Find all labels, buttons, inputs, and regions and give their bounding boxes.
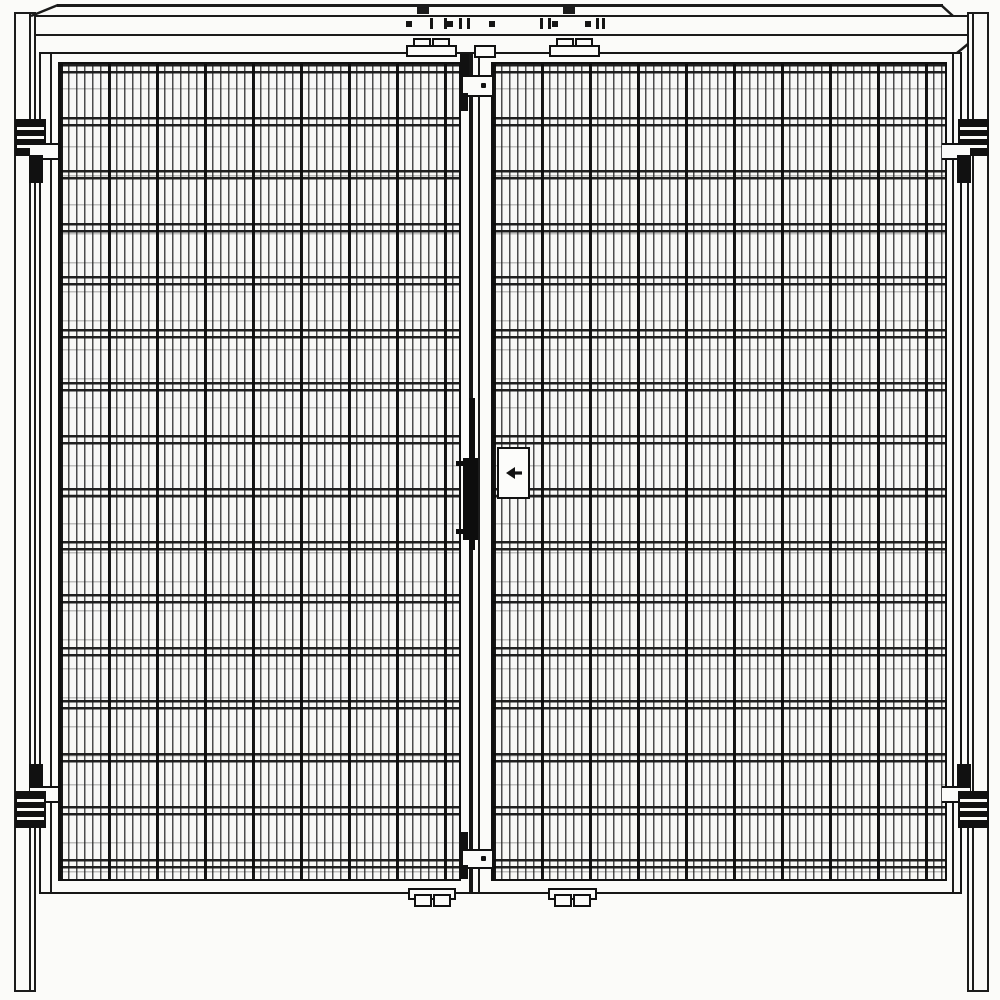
hinge-leaf	[957, 155, 971, 183]
wire-mesh-panel-right	[491, 62, 947, 881]
top-rail	[31, 15, 969, 36]
arrow-left-icon	[503, 465, 525, 481]
rail-bolt-icon	[489, 21, 495, 27]
rail-fitting	[430, 18, 433, 29]
stile-edge-line	[50, 54, 52, 892]
lock-rod-upper	[469, 398, 475, 462]
latch-stub	[459, 93, 468, 111]
hinge-right-bottom	[958, 791, 989, 828]
lock-rod-lower	[469, 538, 475, 550]
rail-bolt-icon	[585, 21, 591, 27]
door-leaf-left	[39, 52, 471, 894]
rod-bracket	[456, 529, 465, 534]
rod-bracket	[456, 461, 465, 466]
track-bolt-notch-right	[563, 6, 575, 14]
top-track-back-edge	[57, 4, 943, 7]
track-bolt-notch-left	[417, 6, 429, 14]
foot-tab	[554, 894, 572, 907]
rail-fitting	[467, 18, 470, 29]
rail-fitting	[540, 18, 543, 29]
hanger-bracket-right	[549, 45, 600, 57]
post-edge-line	[972, 14, 974, 990]
latch-stub	[459, 832, 468, 850]
foot-tab	[573, 894, 591, 907]
door-leaf-right	[471, 52, 962, 894]
latch-stub-bottom	[459, 865, 468, 879]
rail-fitting	[602, 18, 605, 29]
mesh-gate-drawing	[0, 0, 1000, 1000]
wire-mesh-panel-left	[58, 62, 461, 881]
foot-tab	[433, 894, 451, 907]
center-stile-cap	[474, 45, 496, 58]
rail-fitting	[596, 18, 599, 29]
hanger-bracket-left	[406, 45, 457, 57]
rail-bolt-icon	[406, 21, 412, 27]
hinge-leaf	[29, 155, 43, 183]
foot-tab	[414, 894, 432, 907]
rail-fitting	[459, 18, 462, 29]
latch-stub-top	[460, 54, 469, 76]
hinge-left-bottom	[15, 791, 46, 828]
lock-plate	[497, 447, 530, 499]
lock-rod-handle	[463, 458, 478, 540]
stile-edge-line	[952, 54, 954, 892]
rail-bolt-icon	[447, 21, 453, 27]
latch-bolt-icon	[481, 856, 486, 861]
rail-fitting	[548, 18, 551, 29]
rail-bolt-icon	[552, 21, 558, 27]
latch-bolt-icon	[481, 83, 486, 88]
stile-edge-line	[478, 54, 480, 892]
